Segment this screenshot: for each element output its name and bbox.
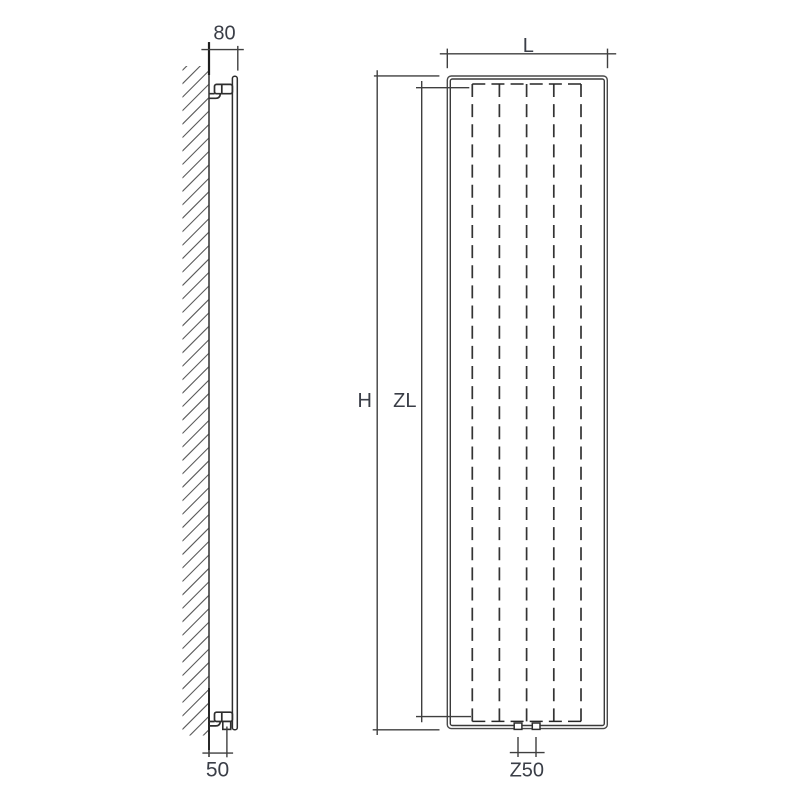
svg-text:50: 50 bbox=[206, 759, 229, 782]
svg-text:ZL: ZL bbox=[393, 390, 416, 412]
svg-text:80: 80 bbox=[213, 23, 235, 45]
svg-text:H: H bbox=[358, 390, 372, 412]
svg-text:L: L bbox=[523, 35, 534, 57]
svg-text:Z50: Z50 bbox=[510, 759, 544, 781]
